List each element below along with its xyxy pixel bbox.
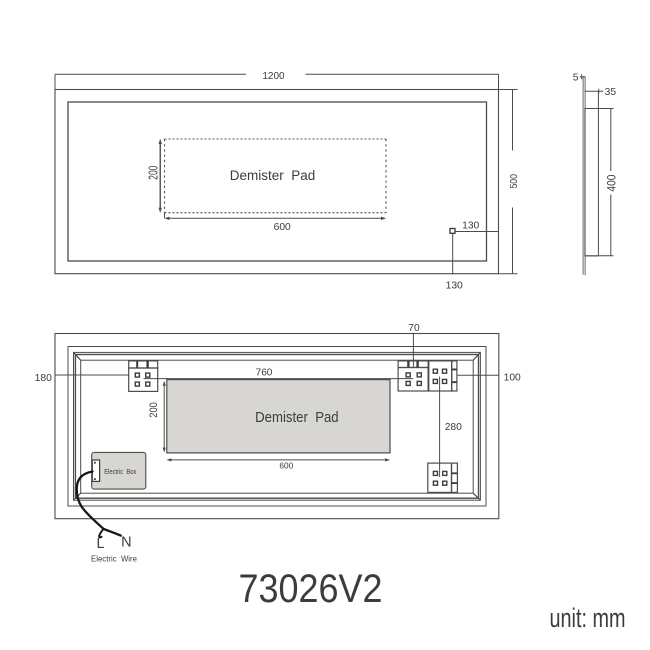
svg-text:L: L — [97, 536, 105, 552]
svg-text:unit: mm: unit: mm — [550, 603, 626, 633]
svg-text:73026V2: 73026V2 — [239, 567, 383, 611]
svg-text:400: 400 — [604, 175, 618, 192]
svg-text:280: 280 — [445, 422, 462, 433]
svg-text:Electric Wire: Electric Wire — [91, 553, 137, 563]
svg-text:600: 600 — [279, 461, 293, 471]
svg-text:130: 130 — [462, 221, 479, 232]
svg-text:130: 130 — [446, 281, 463, 292]
svg-text:Demister Pad: Demister Pad — [255, 410, 339, 426]
svg-text:Demister Pad: Demister Pad — [230, 168, 316, 183]
svg-text:70: 70 — [408, 323, 420, 334]
svg-text:200: 200 — [148, 402, 160, 417]
svg-text:35: 35 — [605, 87, 617, 98]
svg-text:Electric Box: Electric Box — [104, 467, 136, 476]
svg-text:200: 200 — [146, 166, 161, 180]
svg-text:180: 180 — [35, 373, 52, 384]
svg-text:1200: 1200 — [262, 71, 285, 82]
svg-text:760: 760 — [256, 368, 273, 379]
svg-text:N: N — [121, 535, 131, 551]
svg-text:500: 500 — [508, 174, 520, 189]
svg-text:600: 600 — [274, 222, 291, 233]
svg-text:5: 5 — [573, 72, 579, 83]
svg-text:100: 100 — [504, 372, 521, 383]
